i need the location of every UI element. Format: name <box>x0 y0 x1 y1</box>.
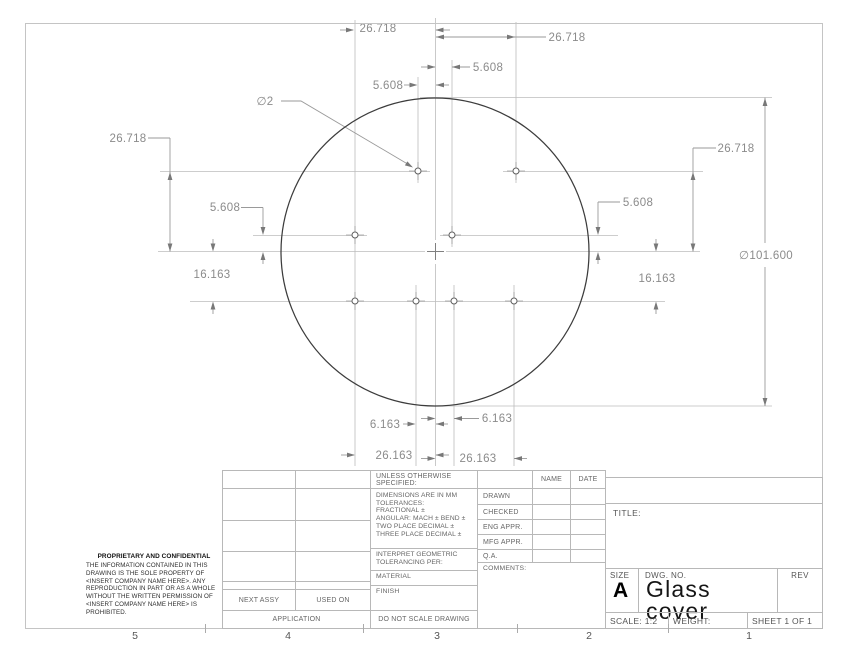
drawing-sheet: 26.718 26.718 5.608 5.608 ∅2 26.718 5.60… <box>0 0 850 657</box>
empty-cell <box>295 520 371 552</box>
empty-cell <box>570 488 606 505</box>
tol-line: ANGULAR: MACH ± BEND ± <box>376 515 477 523</box>
tol-line: FRACTIONAL ± <box>376 507 477 515</box>
empty-cell <box>222 520 296 552</box>
zone-number: 2 <box>586 630 592 642</box>
empty-cell <box>532 488 571 505</box>
empty-cell <box>295 551 371 582</box>
dwg-no-cell: DWG. NO. Glass cover <box>638 568 778 613</box>
interpret-line: TOLERANCING PER: <box>376 559 477 567</box>
tol-line: DIMENSIONS ARE IN MM <box>376 492 477 500</box>
title-cell: TITLE: <box>605 503 823 569</box>
empty-cell <box>295 470 371 489</box>
empty-cell <box>532 534 571 550</box>
empty-cell <box>295 488 371 521</box>
finish-cell: FINISH <box>370 585 478 611</box>
empty-cell <box>570 519 606 535</box>
tol-line: TOLERANCES: <box>376 500 477 508</box>
size-cell: SIZE A <box>605 568 639 613</box>
interpret-geometric-cell: INTERPRET GEOMETRIC TOLERANCING PER: <box>370 548 478 571</box>
zone-tick <box>205 624 206 633</box>
mfg-appr-cell: MFG APPR. <box>477 534 533 550</box>
do-not-scale-cell: DO NOT SCALE DRAWING <box>370 610 478 629</box>
empty-cell <box>532 504 571 520</box>
name-header-cell: NAME <box>532 470 571 489</box>
tol-line: THREE PLACE DECIMAL ± <box>376 531 477 539</box>
date-header-cell: DATE <box>570 470 606 489</box>
zone-number: 1 <box>746 630 752 642</box>
interpret-line: INTERPRET GEOMETRIC <box>376 551 477 559</box>
material-cell: MATERIAL <box>370 570 478 586</box>
empty-cell <box>570 549 606 563</box>
zone-number: 4 <box>285 630 291 642</box>
rev-cell: REV <box>777 568 823 613</box>
empty-cell <box>222 470 296 489</box>
empty-cell <box>605 477 823 504</box>
zone-tick <box>668 624 669 633</box>
tol-line: TWO PLACE DECIMAL ± <box>376 523 477 531</box>
zone-number: 5 <box>132 630 138 642</box>
rev-label: REV <box>778 569 822 580</box>
proprietary-heading: PROPRIETARY AND CONFIDENTIAL <box>86 553 222 560</box>
empty-cell <box>222 551 296 582</box>
empty-cell <box>222 488 296 521</box>
tolerances-cell: DIMENSIONS ARE IN MM TOLERANCES: FRACTIO… <box>370 488 478 549</box>
eng-appr-cell: ENG APPR. <box>477 519 533 535</box>
empty-cell <box>570 534 606 550</box>
empty-cell <box>477 470 533 489</box>
proprietary-note: PROPRIETARY AND CONFIDENTIAL THE INFORMA… <box>86 553 222 617</box>
zone-number: 3 <box>434 630 440 642</box>
weight-cell: WEIGHT: <box>668 612 748 629</box>
comments-cell: COMMENTS: <box>477 562 606 629</box>
empty-cell <box>532 519 571 535</box>
drawn-cell: DRAWN <box>477 488 533 505</box>
empty-cell <box>570 504 606 520</box>
sheet-cell: SHEET 1 OF 1 <box>747 612 823 629</box>
scale-cell: SCALE: 1:2 <box>605 612 669 629</box>
unless-otherwise-cell: UNLESS OTHERWISE SPECIFIED: <box>370 470 478 489</box>
used-on-cell: USED ON <box>295 589 371 611</box>
proprietary-body: THE INFORMATION CONTAINED IN THIS DRAWIN… <box>86 562 222 617</box>
checked-cell: CHECKED <box>477 504 533 520</box>
empty-cell <box>532 549 571 563</box>
zone-tick <box>517 624 518 633</box>
next-assy-cell: NEXT ASSY <box>222 589 296 611</box>
zone-tick <box>363 624 364 633</box>
application-cell: APPLICATION <box>222 610 371 629</box>
qa-cell: Q.A. <box>477 549 533 563</box>
size-value: A <box>613 581 638 601</box>
